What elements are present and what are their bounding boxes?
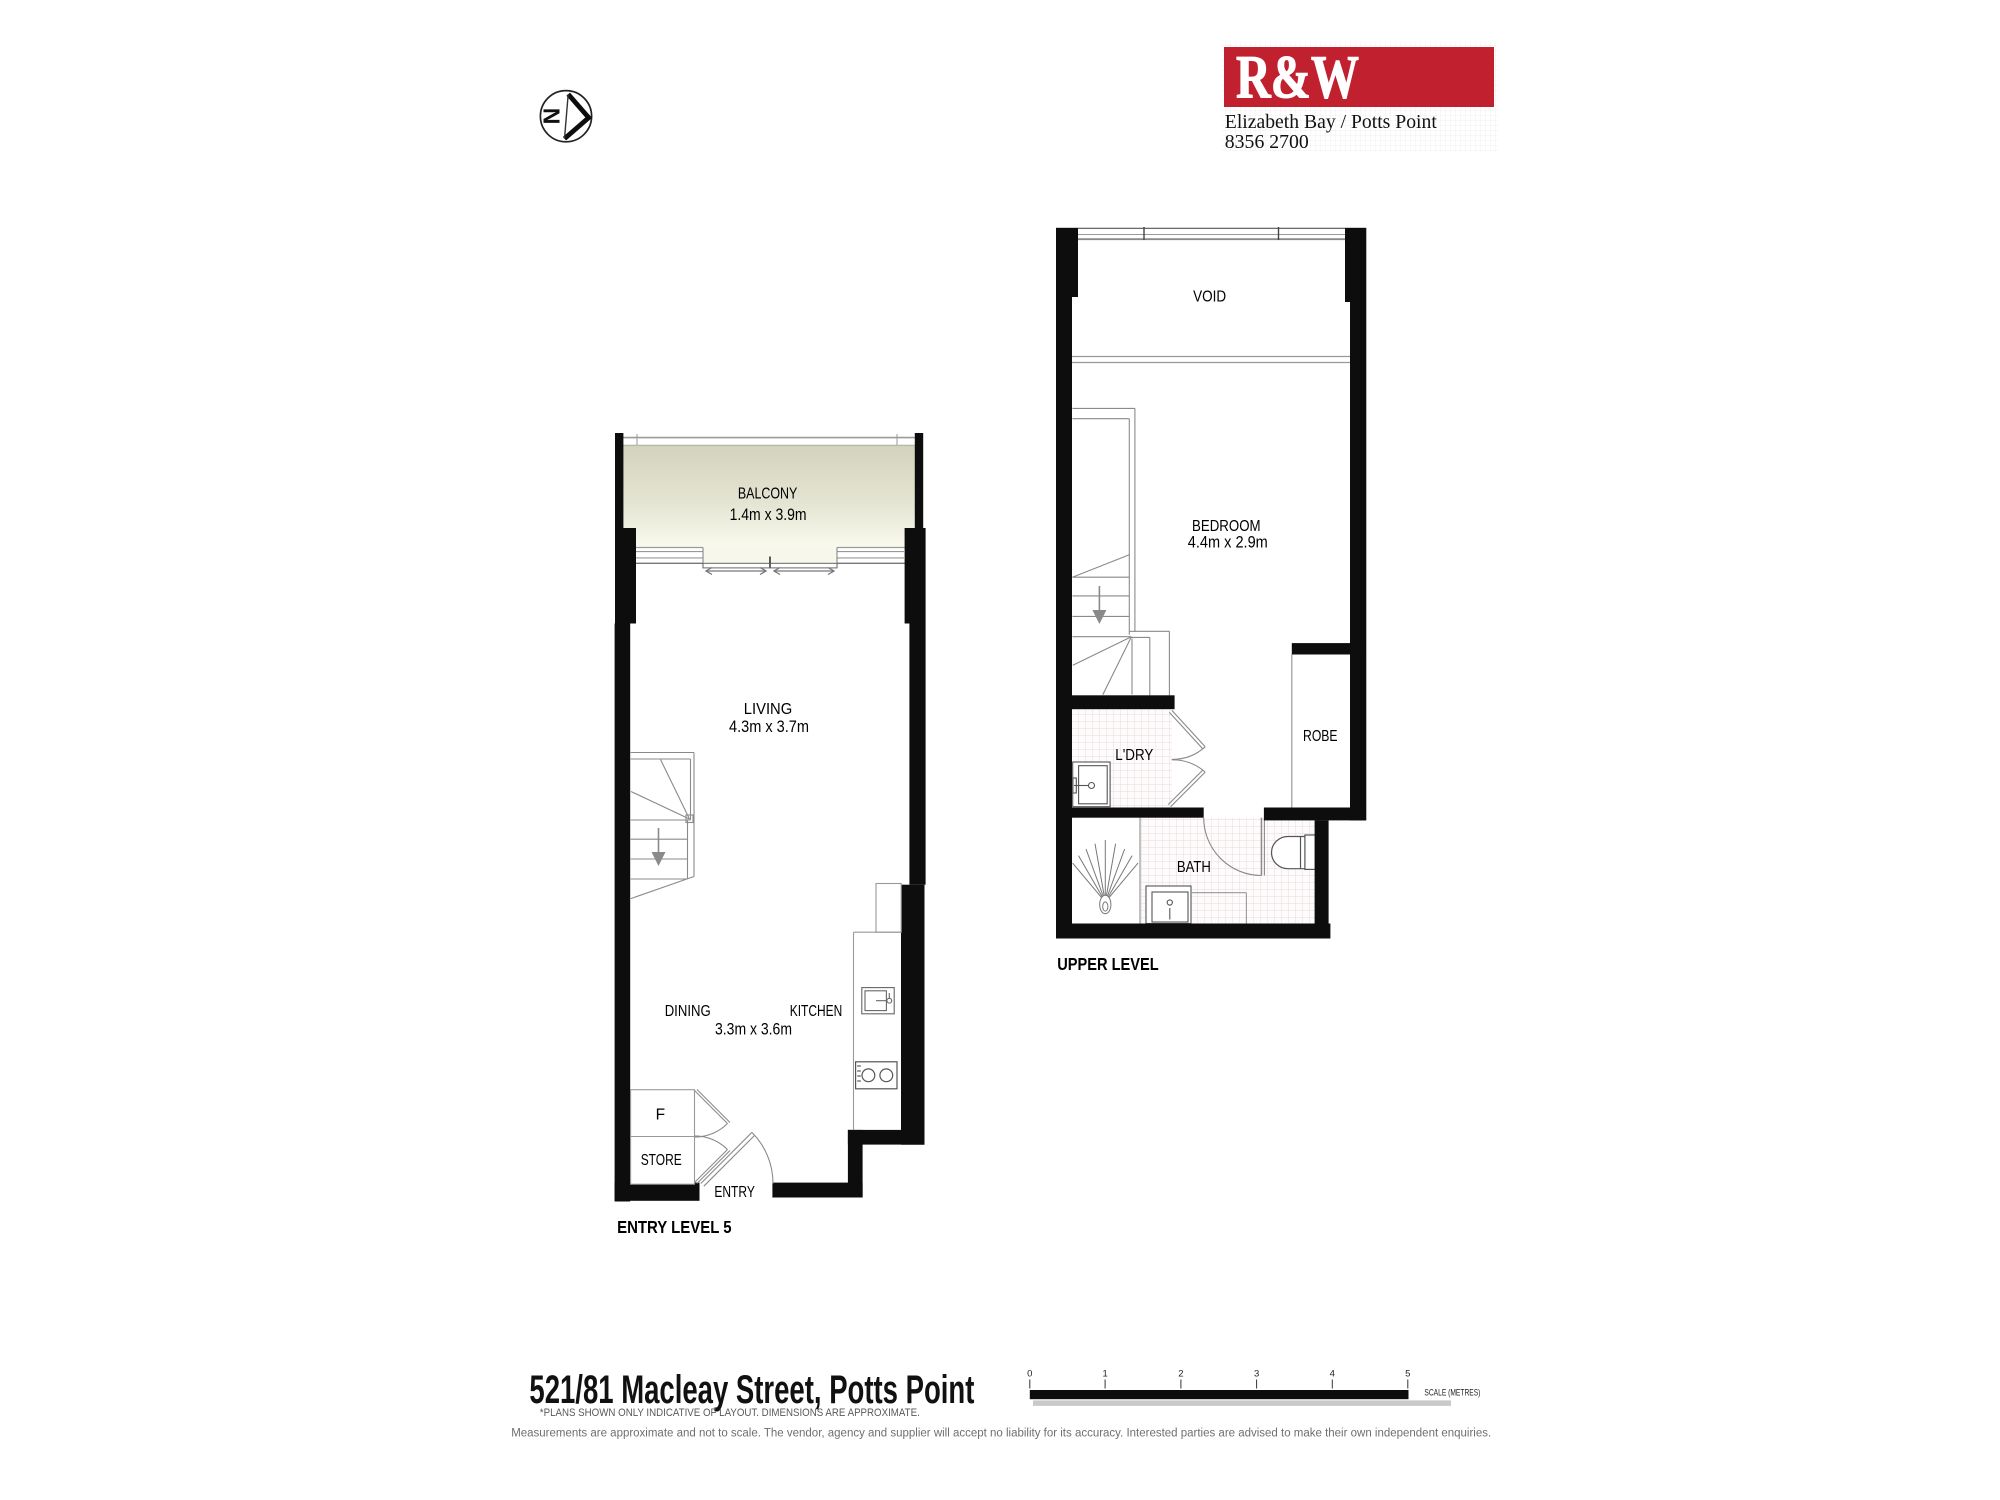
svg-text:BATH: BATH bbox=[1177, 859, 1211, 876]
svg-text:3: 3 bbox=[1254, 1369, 1259, 1380]
svg-text:*PLANS SHOWN ONLY INDICATIVE O: *PLANS SHOWN ONLY INDICATIVE OF LAYOUT. … bbox=[540, 1407, 920, 1419]
svg-text:BEDROOM: BEDROOM bbox=[1192, 518, 1261, 535]
svg-text:BALCONY: BALCONY bbox=[738, 486, 798, 503]
svg-text:8356 2700: 8356 2700 bbox=[1225, 131, 1309, 153]
svg-text:ENTRY: ENTRY bbox=[714, 1184, 755, 1201]
svg-text:KITCHEN: KITCHEN bbox=[790, 1003, 843, 1020]
svg-text:DINING: DINING bbox=[665, 1003, 711, 1020]
svg-text:UPPER LEVEL: UPPER LEVEL bbox=[1057, 954, 1159, 974]
svg-text:R&W: R&W bbox=[1236, 45, 1359, 112]
svg-text:Elizabeth Bay / Potts Point: Elizabeth Bay / Potts Point bbox=[1225, 111, 1437, 133]
svg-text:2: 2 bbox=[1178, 1369, 1183, 1380]
svg-text:4.3m x 3.7m: 4.3m x 3.7m bbox=[729, 718, 809, 736]
svg-text:VOID: VOID bbox=[1193, 289, 1226, 306]
svg-text:SCALE (METRES): SCALE (METRES) bbox=[1424, 1388, 1480, 1398]
svg-text:LIVING: LIVING bbox=[744, 701, 793, 718]
svg-text:3.3m x 3.6m: 3.3m x 3.6m bbox=[715, 1021, 792, 1039]
svg-text:4.4m x 2.9m: 4.4m x 2.9m bbox=[1188, 534, 1268, 552]
svg-text:L'DRY: L'DRY bbox=[1115, 747, 1153, 764]
svg-text:STORE: STORE bbox=[641, 1152, 682, 1169]
svg-text:1.4m x 3.9m: 1.4m x 3.9m bbox=[730, 506, 807, 524]
svg-text:5: 5 bbox=[1405, 1369, 1410, 1380]
svg-text:0: 0 bbox=[1027, 1369, 1032, 1380]
svg-text:521/81 Macleay Street, Potts P: 521/81 Macleay Street, Potts Point bbox=[529, 1368, 974, 1412]
svg-text:Measurements are approximate a: Measurements are approximate and not to … bbox=[511, 1428, 1491, 1440]
svg-text:1: 1 bbox=[1102, 1369, 1107, 1380]
svg-text:N: N bbox=[539, 108, 565, 125]
svg-text:ENTRY LEVEL 5: ENTRY LEVEL 5 bbox=[617, 1217, 732, 1237]
svg-text:F: F bbox=[656, 1107, 665, 1124]
svg-text:ROBE: ROBE bbox=[1303, 728, 1338, 745]
svg-text:4: 4 bbox=[1330, 1369, 1335, 1380]
